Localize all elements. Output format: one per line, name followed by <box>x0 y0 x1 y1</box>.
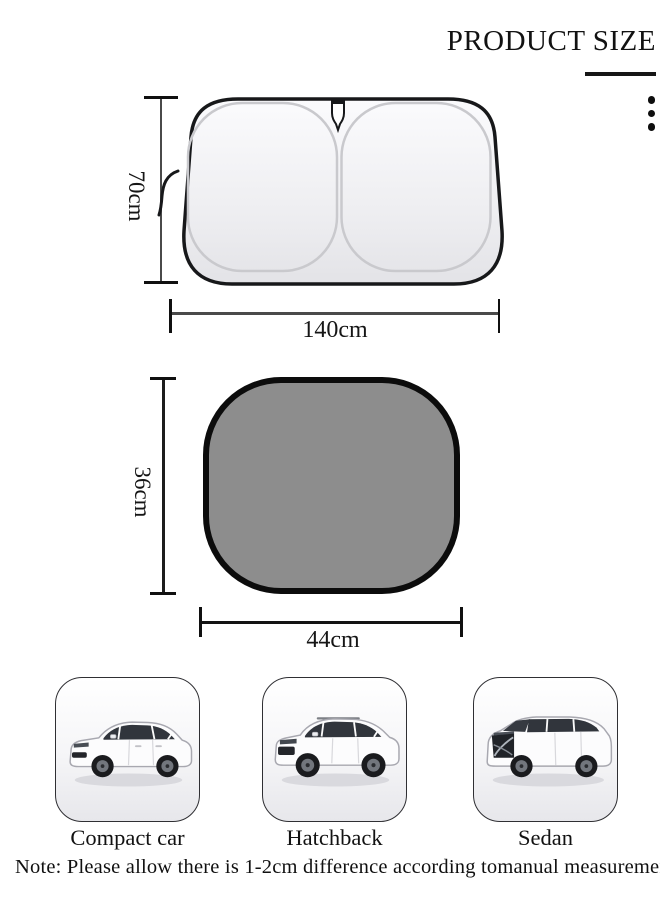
windshield-width-dimension-line <box>170 312 500 315</box>
windshield-width-label: 140cm <box>265 317 405 344</box>
car-card-sedan <box>473 677 618 822</box>
dimension-cap <box>150 592 176 595</box>
car-type-label: Compact car <box>45 825 210 851</box>
product-size-infographic: PRODUCT SIZE 70cm 140cm 36 <box>0 0 660 900</box>
dimension-cap <box>150 377 176 380</box>
window-shade-height-label: 36cm <box>129 452 155 532</box>
dimension-tick <box>169 299 172 333</box>
car-type-label: Sedan <box>463 825 628 851</box>
car-card-hatchback <box>262 677 407 822</box>
windshield-shade-image <box>148 93 508 289</box>
sedan-car-image <box>477 702 616 795</box>
compact-car-image <box>59 702 198 795</box>
dimension-tick <box>460 607 463 637</box>
dimension-tick <box>199 607 202 637</box>
window-shade-width-label: 44cm <box>263 627 403 654</box>
page-title: PRODUCT SIZE <box>447 25 656 58</box>
dot <box>648 110 656 118</box>
dimension-tick <box>498 299 501 333</box>
side-hook <box>159 171 178 215</box>
car-card-compact <box>55 677 200 822</box>
window-shade-image <box>203 377 460 594</box>
overflow-menu-icon <box>648 96 656 131</box>
dot <box>648 123 656 131</box>
hatchback-car-image <box>266 702 405 795</box>
title-underline <box>585 72 656 76</box>
window-shade-height-dimension-line <box>162 378 165 593</box>
dot <box>648 96 656 104</box>
windshield-height-label: 70cm <box>123 156 149 236</box>
car-type-label: Hatchback <box>252 825 417 851</box>
window-shade-width-dimension-line <box>200 621 463 624</box>
note-text: Note: Please allow there is 1-2cm differ… <box>15 856 655 879</box>
